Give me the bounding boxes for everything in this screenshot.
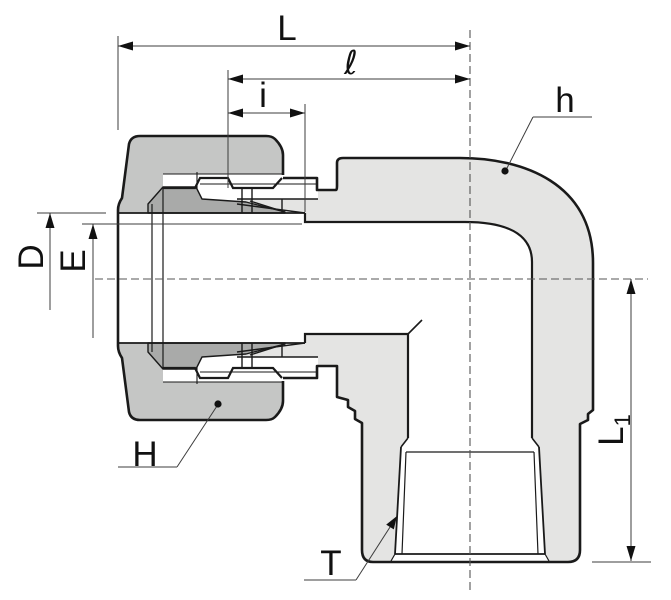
- label-E: E: [54, 249, 93, 272]
- label-i: i: [259, 76, 267, 115]
- L-arrow-right: [455, 42, 470, 51]
- drawing-canvas: L ℓ i h D E H T L1: [0, 0, 671, 600]
- h-leader-dot: [501, 167, 508, 174]
- label-h: h: [555, 81, 574, 120]
- L1-arrow-down: [627, 546, 636, 561]
- port-mouth-cutout: [283, 213, 305, 343]
- label-L: L: [277, 9, 296, 48]
- E-arrow-up: [89, 224, 98, 239]
- label-T: T: [320, 544, 341, 583]
- label-ell: ℓ: [343, 43, 358, 82]
- h-leader-line: [506, 117, 533, 170]
- label-L1-subscript: 1: [610, 414, 635, 426]
- label-L1: L1: [592, 414, 635, 446]
- label-D: D: [12, 244, 51, 269]
- L-arrow-left: [118, 42, 133, 51]
- i-arrow-right: [290, 109, 305, 118]
- L1-arrow-up: [627, 279, 636, 294]
- ell-arrow-right: [455, 75, 470, 84]
- i-arrow-left: [228, 109, 243, 118]
- fitting-cross-section-drawing: L ℓ i h D E H T L1: [0, 0, 671, 600]
- ell-arrow-left: [228, 75, 243, 84]
- label-H: H: [132, 435, 157, 474]
- label-L1-base: L: [592, 426, 631, 445]
- D-arrow-up: [46, 213, 55, 228]
- H-leader-dot: [214, 400, 221, 407]
